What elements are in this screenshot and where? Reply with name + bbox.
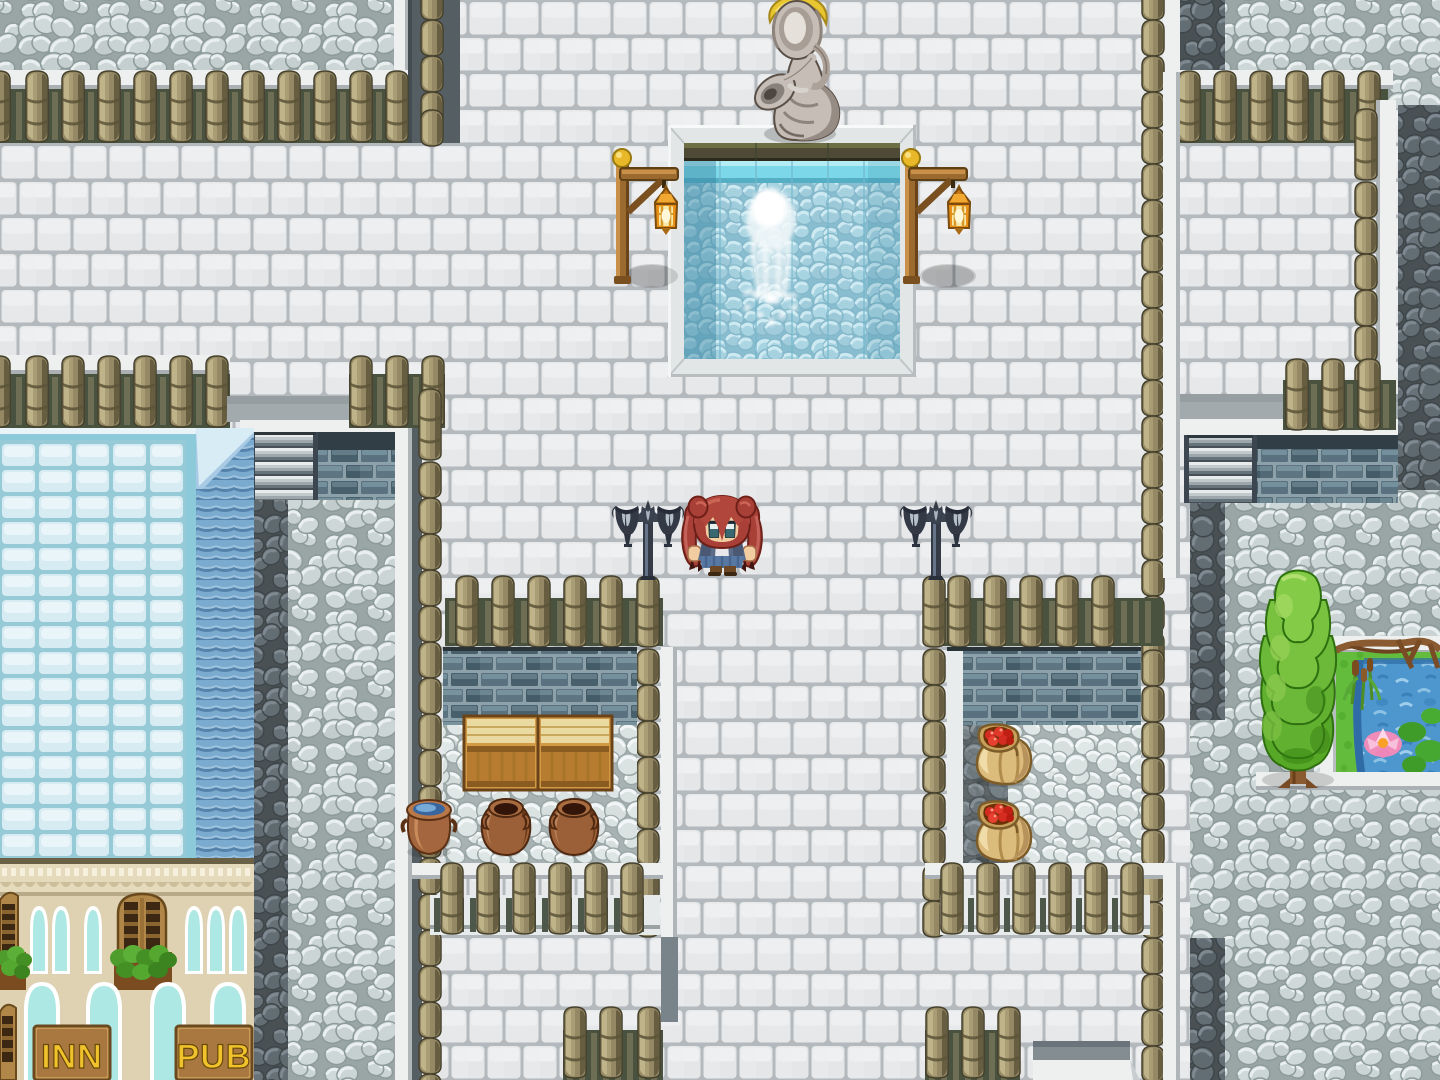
svg-text:INN: INN: [41, 1038, 103, 1076]
svg-text:PUB: PUB: [177, 1038, 252, 1076]
